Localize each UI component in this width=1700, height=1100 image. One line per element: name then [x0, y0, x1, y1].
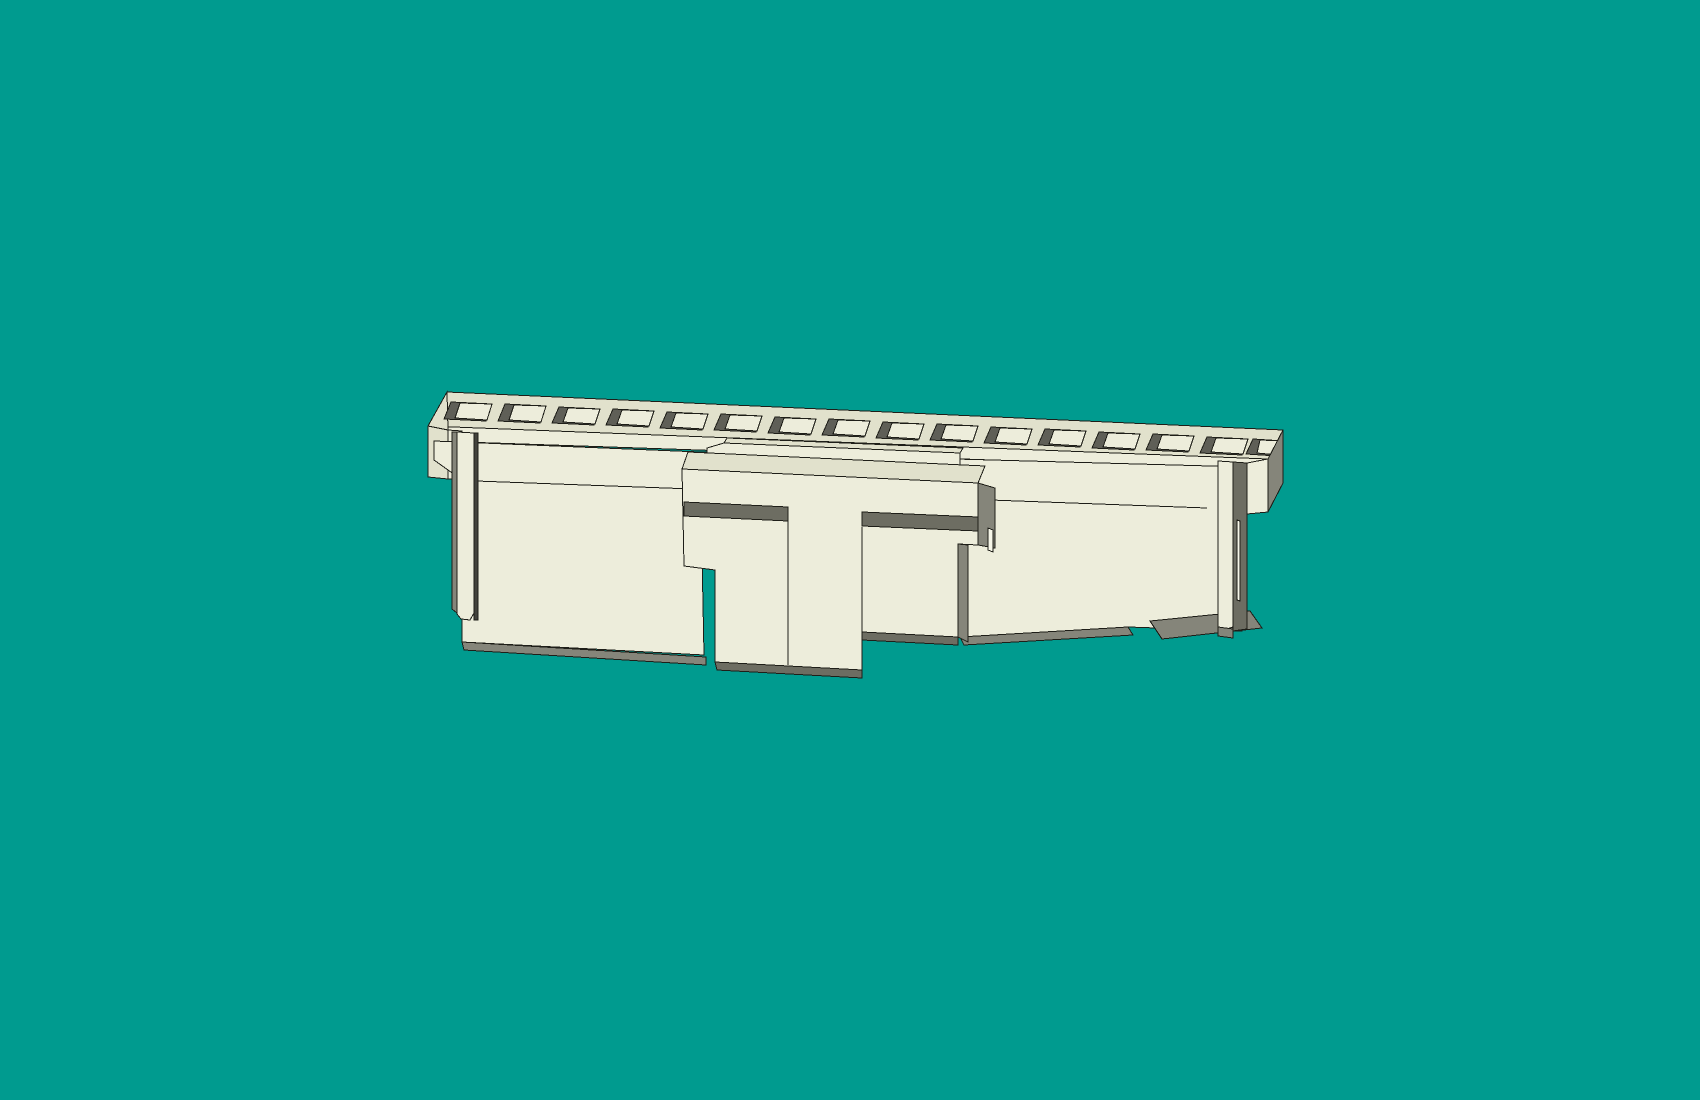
terminal-slot-wall-2[interactable] — [509, 405, 546, 422]
terminal-slot-wall-8[interactable] — [833, 420, 870, 436]
right-latch-bar[interactable] — [1218, 461, 1233, 632]
terminal-slot-wall-9[interactable] — [887, 423, 924, 439]
terminal-slot-wall-15[interactable] — [1211, 438, 1248, 454]
terminal-slot-wall-3[interactable] — [563, 408, 600, 424]
right-step-shadow[interactable] — [958, 544, 968, 642]
terminal-slot-wall-4[interactable] — [617, 410, 654, 426]
right-end-block-front[interactable] — [1247, 459, 1268, 514]
cad-viewport[interactable] — [0, 0, 1700, 1100]
terminal-slot-wall-14[interactable] — [1157, 435, 1194, 451]
terminal-slot-wall-7[interactable] — [779, 418, 816, 434]
terminal-slot-wall-11[interactable] — [995, 428, 1032, 444]
right-gap-highlight[interactable] — [1237, 520, 1240, 601]
terminal-slot-wall-13[interactable] — [1103, 433, 1140, 449]
left-latch-side[interactable] — [452, 432, 457, 613]
terminal-slot-wall-10[interactable] — [941, 425, 978, 441]
block-right-highlight[interactable] — [988, 528, 993, 552]
terminal-slot-wall-5[interactable] — [671, 413, 708, 429]
terminal-slot-wall-12[interactable] — [1049, 430, 1086, 446]
terminal-slot-wall-6[interactable] — [725, 415, 762, 431]
left-latch-bar[interactable] — [457, 432, 474, 620]
left-latch-gap[interactable] — [474, 433, 478, 620]
right-latch-underside[interactable] — [1218, 627, 1233, 638]
terminal-slot-wall-1[interactable] — [455, 403, 492, 420]
